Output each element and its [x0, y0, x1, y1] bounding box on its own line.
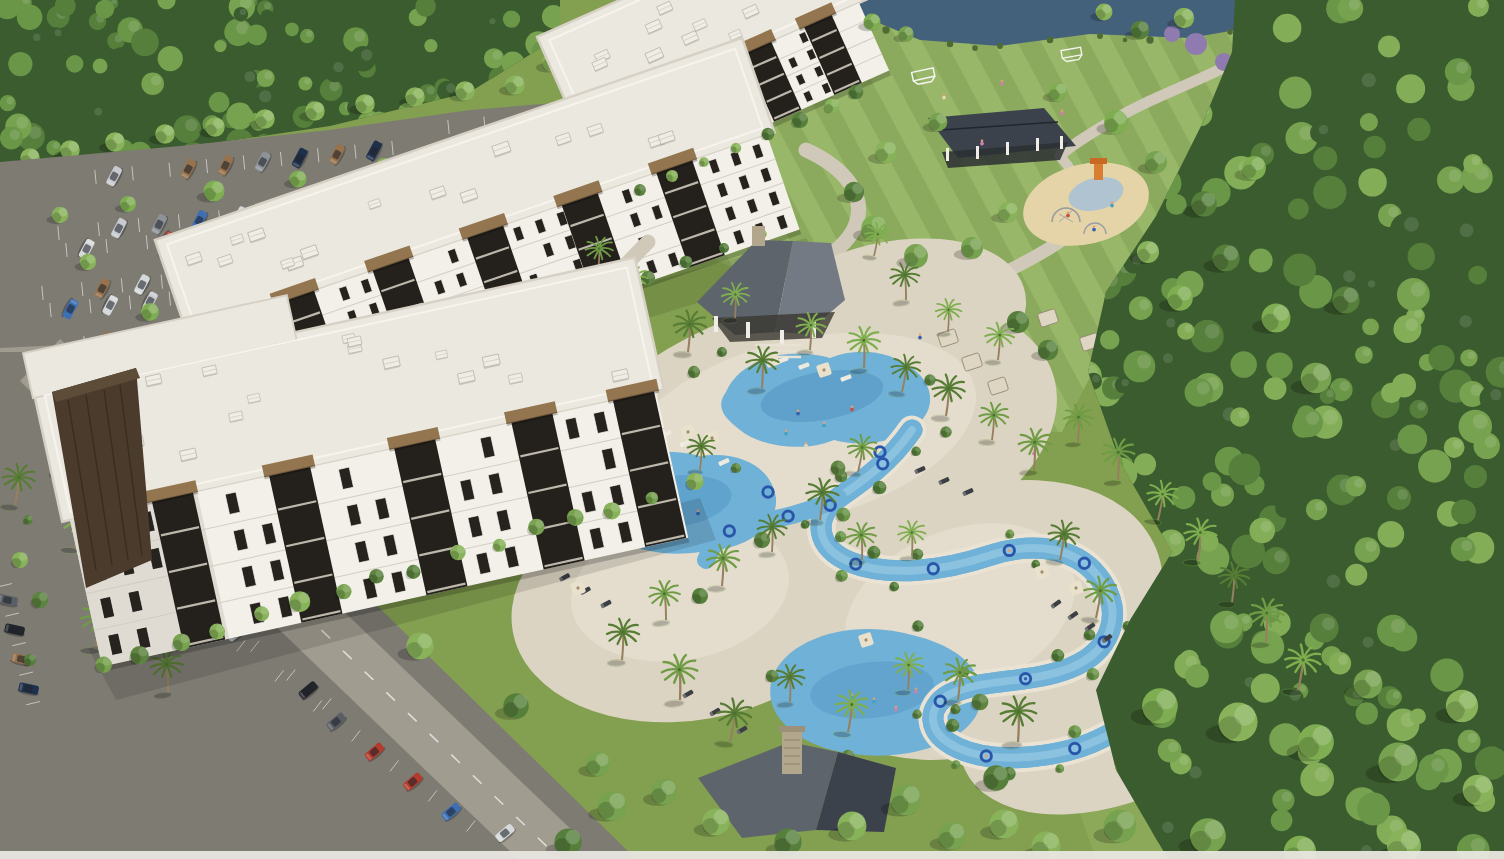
- forest-tree-light: [333, 62, 343, 72]
- forest-tree: [1396, 74, 1425, 103]
- play-tower-roof: [1090, 158, 1107, 164]
- forest-tree-light: [1365, 540, 1376, 551]
- forest-tree-light: [128, 21, 139, 32]
- forest-tree: [1279, 76, 1311, 108]
- forest-tree: [131, 28, 159, 56]
- tube-rider: [1024, 677, 1027, 680]
- forest-tree-light: [1459, 315, 1471, 327]
- forest-tree-light: [1327, 390, 1334, 397]
- reed-clump: [947, 41, 954, 48]
- post: [746, 322, 750, 338]
- forest-tree: [1407, 118, 1430, 141]
- forest-tree: [1356, 702, 1378, 724]
- forest-tree: [177, 10, 201, 34]
- image-bottom-border: [0, 851, 1504, 859]
- forest-tree-light: [1306, 412, 1319, 425]
- forest-tree: [109, 47, 134, 72]
- forest-tree: [261, 9, 273, 21]
- forest-tree-light: [1368, 280, 1375, 287]
- person-head: [981, 140, 984, 143]
- person-body: [872, 700, 876, 704]
- person-head: [1093, 226, 1096, 229]
- person-body: [804, 444, 808, 448]
- reed-clump: [1146, 36, 1153, 43]
- forest-tree-light: [1431, 758, 1445, 772]
- forest-tree-light: [1363, 348, 1371, 356]
- person-head: [785, 430, 788, 433]
- stone-chimney: [782, 730, 802, 774]
- forest-tree-light: [489, 18, 495, 24]
- forest-tree: [1266, 352, 1292, 378]
- forest-tree-light: [1197, 382, 1210, 395]
- forest-tree: [209, 92, 230, 113]
- person-body: [1000, 82, 1004, 86]
- forest-tree: [93, 59, 108, 74]
- forest-tree: [1229, 454, 1261, 486]
- forest-tree-light: [244, 71, 255, 82]
- forest-tree-light: [1397, 489, 1408, 500]
- forest-tree-light: [33, 33, 40, 40]
- forest-tree: [1267, 473, 1296, 502]
- forest-tree-light: [1468, 351, 1476, 359]
- forest-tree-light: [354, 30, 365, 41]
- forest-tree-light: [7, 97, 14, 104]
- post: [1036, 138, 1039, 151]
- forest-tree-light: [1456, 62, 1468, 74]
- forest-tree-light: [259, 90, 271, 102]
- person-head: [1061, 110, 1064, 113]
- forest-tree-light: [1362, 73, 1376, 87]
- forest-tree: [204, 9, 224, 29]
- flowering-tree: [1185, 33, 1207, 55]
- forest-tree: [1271, 809, 1293, 831]
- forest-tree-light: [1274, 550, 1286, 562]
- forest-tree-light: [16, 117, 28, 129]
- reed-clump: [997, 43, 1003, 49]
- forest-tree: [1408, 243, 1435, 270]
- tube-rider: [1008, 549, 1011, 552]
- forest-tree-light: [1453, 440, 1462, 449]
- forest-tree-light: [1166, 318, 1175, 327]
- post: [1006, 142, 1009, 155]
- forest-tree-light: [1449, 170, 1461, 182]
- forest-tree-light: [1388, 207, 1399, 218]
- person-body: [894, 708, 898, 712]
- forest-tree: [1203, 472, 1222, 491]
- forest-tree: [1378, 521, 1405, 548]
- forest-tree-light: [264, 71, 272, 79]
- post: [714, 316, 718, 332]
- person-body: [784, 432, 788, 436]
- forest-tree-light: [1179, 756, 1189, 766]
- person-head: [1111, 202, 1114, 205]
- reed-clump: [972, 45, 978, 51]
- person-head: [797, 410, 800, 413]
- forest-tree: [1451, 499, 1476, 524]
- forest-tree: [66, 55, 84, 73]
- forest-tree-light: [1405, 319, 1418, 332]
- forest-tree: [1264, 377, 1287, 400]
- reed-clump: [1097, 33, 1103, 39]
- forest-tree: [1275, 500, 1293, 518]
- forest-tree-light: [1343, 270, 1355, 282]
- forest-tree-light: [1467, 733, 1477, 743]
- forest-tree: [1230, 351, 1257, 378]
- person-body: [1092, 228, 1096, 232]
- forest-tree-light: [1315, 502, 1325, 512]
- forest-tree-light: [1417, 402, 1425, 410]
- chimney-cap: [779, 726, 805, 732]
- forest-tree-light: [10, 129, 20, 139]
- forest-tree: [214, 40, 226, 52]
- forest-tree-light: [1224, 615, 1239, 630]
- forest-tree: [503, 10, 520, 27]
- forest-tree-light: [1137, 354, 1151, 368]
- forest-tree-light: [1139, 299, 1150, 310]
- forest-tree-light: [1473, 414, 1488, 429]
- forest-tree: [285, 23, 299, 37]
- forest-tree: [1288, 198, 1309, 219]
- forest-tree: [1358, 168, 1386, 196]
- forest-tree-light: [1490, 389, 1501, 400]
- person-body: [796, 412, 800, 416]
- forest-tree-light: [95, 108, 103, 116]
- person-head: [915, 688, 918, 691]
- person-head: [1001, 80, 1004, 83]
- forest-tree: [424, 39, 437, 52]
- forest-tree-light: [151, 75, 161, 85]
- forest-tree: [1430, 658, 1463, 691]
- forest-tree-light: [1354, 478, 1363, 487]
- person-body: [1110, 204, 1114, 208]
- forest-tree-light: [1327, 574, 1340, 587]
- forest-tree: [1428, 345, 1454, 371]
- forest-tree-light: [1404, 217, 1419, 232]
- forest-tree: [1398, 424, 1428, 454]
- forest-tree: [1381, 383, 1401, 403]
- person-body: [918, 336, 922, 340]
- forest-tree-light: [1242, 615, 1250, 623]
- forest-tree-light: [264, 2, 271, 9]
- person-head: [851, 406, 854, 409]
- reed-clump: [1047, 37, 1053, 43]
- rendering-canvas: [0, 0, 1504, 859]
- forest-tree: [1313, 146, 1337, 170]
- forest-tree: [1468, 266, 1487, 285]
- forest-tree-light: [1282, 792, 1292, 802]
- person-body: [942, 96, 946, 100]
- forest-tree-light: [306, 31, 313, 38]
- forest-tree: [1418, 449, 1451, 482]
- person-head: [805, 442, 808, 445]
- forest-tree-light: [1185, 325, 1193, 333]
- forest-tree-light: [1322, 617, 1335, 630]
- person-head: [823, 422, 826, 425]
- forest-tree: [95, 0, 114, 19]
- forest-tree-light: [1189, 766, 1201, 778]
- forest-tree-light: [1122, 379, 1129, 386]
- person-head: [943, 94, 946, 97]
- forest-tree: [1100, 330, 1120, 350]
- forest-tree: [1313, 176, 1346, 209]
- forest-tree-light: [1472, 156, 1481, 165]
- forest-tree-light: [492, 51, 501, 60]
- forest-tree-light: [53, 142, 60, 149]
- person-head: [895, 706, 898, 709]
- forest-tree-light: [426, 86, 434, 94]
- person-body: [1060, 112, 1064, 116]
- forest-tree-light: [1092, 375, 1100, 383]
- forest-tree-light: [329, 81, 339, 91]
- forest-tree-light: [1485, 436, 1497, 448]
- forest-tree: [1363, 136, 1385, 158]
- person-head: [1067, 212, 1070, 215]
- forest-tree-light: [1163, 353, 1173, 363]
- play-tower: [1094, 164, 1103, 180]
- forest-tree: [1249, 249, 1273, 273]
- person-head: [919, 334, 922, 337]
- post: [946, 148, 949, 161]
- forest-tree: [1378, 35, 1400, 57]
- forest-tree-light: [446, 83, 455, 92]
- forest-tree-light: [1414, 309, 1422, 317]
- person-body: [914, 690, 918, 694]
- forest-tree: [1360, 113, 1378, 131]
- forest-tree-light: [1260, 521, 1272, 533]
- post: [1060, 136, 1063, 149]
- forest-tree: [158, 46, 183, 71]
- forest-tree: [1283, 254, 1316, 287]
- tube-rider: [985, 754, 988, 757]
- forest-tree: [1273, 14, 1302, 43]
- post: [976, 146, 979, 159]
- forest-tree-light: [1162, 822, 1174, 834]
- forest-tree-light: [185, 119, 197, 131]
- forest-tree: [1185, 664, 1209, 688]
- pavilion-chimney: [752, 226, 765, 246]
- forest-tree: [17, 4, 43, 30]
- forest-tree-light: [1461, 540, 1472, 551]
- forest-tree: [1357, 793, 1390, 826]
- person-body: [850, 408, 854, 412]
- forest-tree: [1362, 319, 1379, 336]
- forest-tree-light: [1169, 533, 1181, 545]
- forest-tree-light: [1315, 767, 1330, 782]
- person-body: [1066, 214, 1070, 218]
- forest-tree-light: [1238, 410, 1247, 419]
- forest-tree: [246, 24, 267, 45]
- forest-tree-light: [1393, 691, 1400, 698]
- forest-tree-light: [1221, 486, 1231, 496]
- forest-tree-light: [1363, 637, 1374, 648]
- forest-tree: [8, 52, 32, 76]
- forest-tree-light: [1391, 619, 1406, 634]
- forest-tree-light: [1339, 381, 1349, 391]
- person-body: [980, 142, 984, 146]
- forest-tree-light: [1338, 655, 1348, 665]
- forest-tree-light: [1323, 410, 1338, 425]
- person-body: [822, 424, 826, 428]
- forest-tree-light: [361, 49, 372, 60]
- forest-tree-light: [304, 78, 310, 84]
- reed-clump: [882, 26, 889, 33]
- forest-tree-light: [1411, 282, 1426, 297]
- forest-tree-light: [1261, 146, 1271, 156]
- forest-tree-light: [240, 9, 247, 16]
- forest-tree-light: [1168, 742, 1179, 753]
- forest-tree: [1410, 708, 1426, 724]
- forest-tree-light: [1205, 324, 1220, 339]
- person-head: [873, 698, 876, 701]
- post: [780, 330, 784, 346]
- forest-tree: [1345, 564, 1367, 586]
- forest-tree-light: [1471, 838, 1486, 853]
- reed-clump: [1123, 38, 1128, 43]
- forest-tree: [1464, 465, 1487, 488]
- reed-clump: [1227, 29, 1233, 35]
- forest-tree-light: [1319, 125, 1328, 134]
- aerial-rendering: [0, 0, 1504, 859]
- forest-tree: [1251, 674, 1280, 703]
- forest-tree-light: [1470, 384, 1482, 396]
- forest-tree-light: [1460, 224, 1474, 238]
- forest-tree-light: [55, 29, 62, 36]
